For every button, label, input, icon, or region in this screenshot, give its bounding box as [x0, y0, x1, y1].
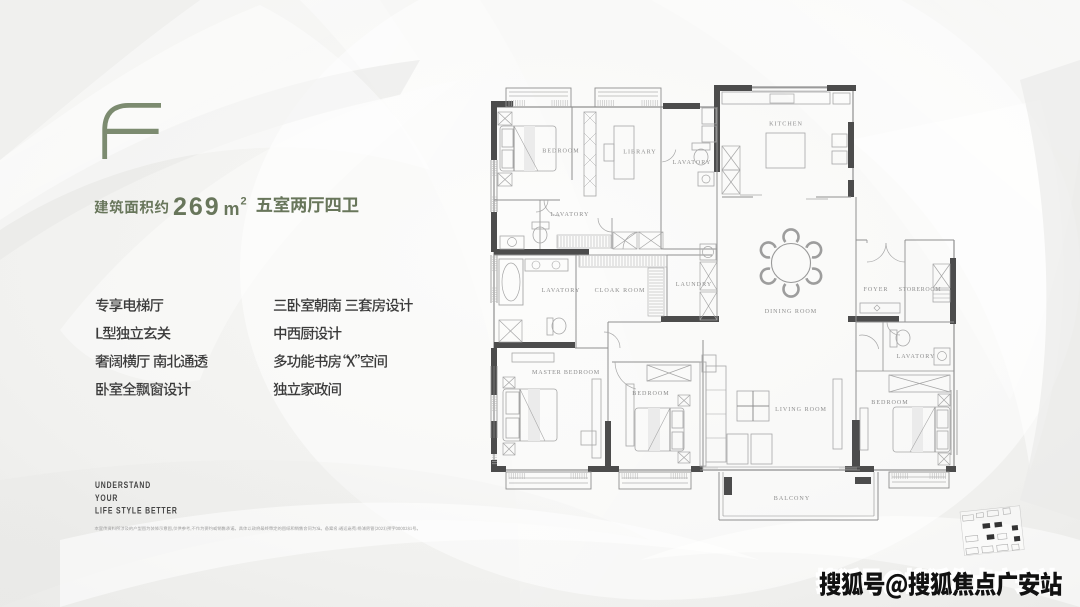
svg-text:BEDROOM: BEDROOM — [632, 391, 669, 397]
svg-text:YOUR: YOUR — [95, 493, 118, 503]
svg-text:BEDROOM: BEDROOM — [542, 149, 579, 155]
svg-text:BALCONY: BALCONY — [774, 496, 810, 502]
svg-text:MASTER BEDROOM: MASTER BEDROOM — [532, 370, 600, 376]
svg-text:2: 2 — [241, 196, 247, 208]
svg-text:CLOAK ROOM: CLOAK ROOM — [595, 288, 646, 294]
svg-text:LIVING ROOM: LIVING ROOM — [775, 407, 827, 413]
svg-text:m: m — [224, 199, 240, 219]
svg-text:LIBRARY: LIBRARY — [623, 150, 656, 156]
svg-text:LAVATORY: LAVATORY — [542, 288, 581, 294]
svg-text:DINING ROOM: DINING ROOM — [765, 309, 817, 315]
svg-text:UNDERSTAND: UNDERSTAND — [95, 480, 151, 490]
svg-text:LAUNDRY: LAUNDRY — [676, 282, 712, 288]
svg-text:LAVATORY: LAVATORY — [551, 212, 590, 218]
svg-text:KITCHEN: KITCHEN — [769, 122, 803, 128]
svg-text:FOYER: FOYER — [864, 287, 889, 293]
svg-text:269: 269 — [173, 193, 221, 221]
svg-text:LAVATORY: LAVATORY — [897, 354, 936, 360]
svg-text:LIFE STYLE BETTER: LIFE STYLE BETTER — [95, 506, 178, 516]
svg-text:BEDROOM: BEDROOM — [871, 400, 908, 406]
